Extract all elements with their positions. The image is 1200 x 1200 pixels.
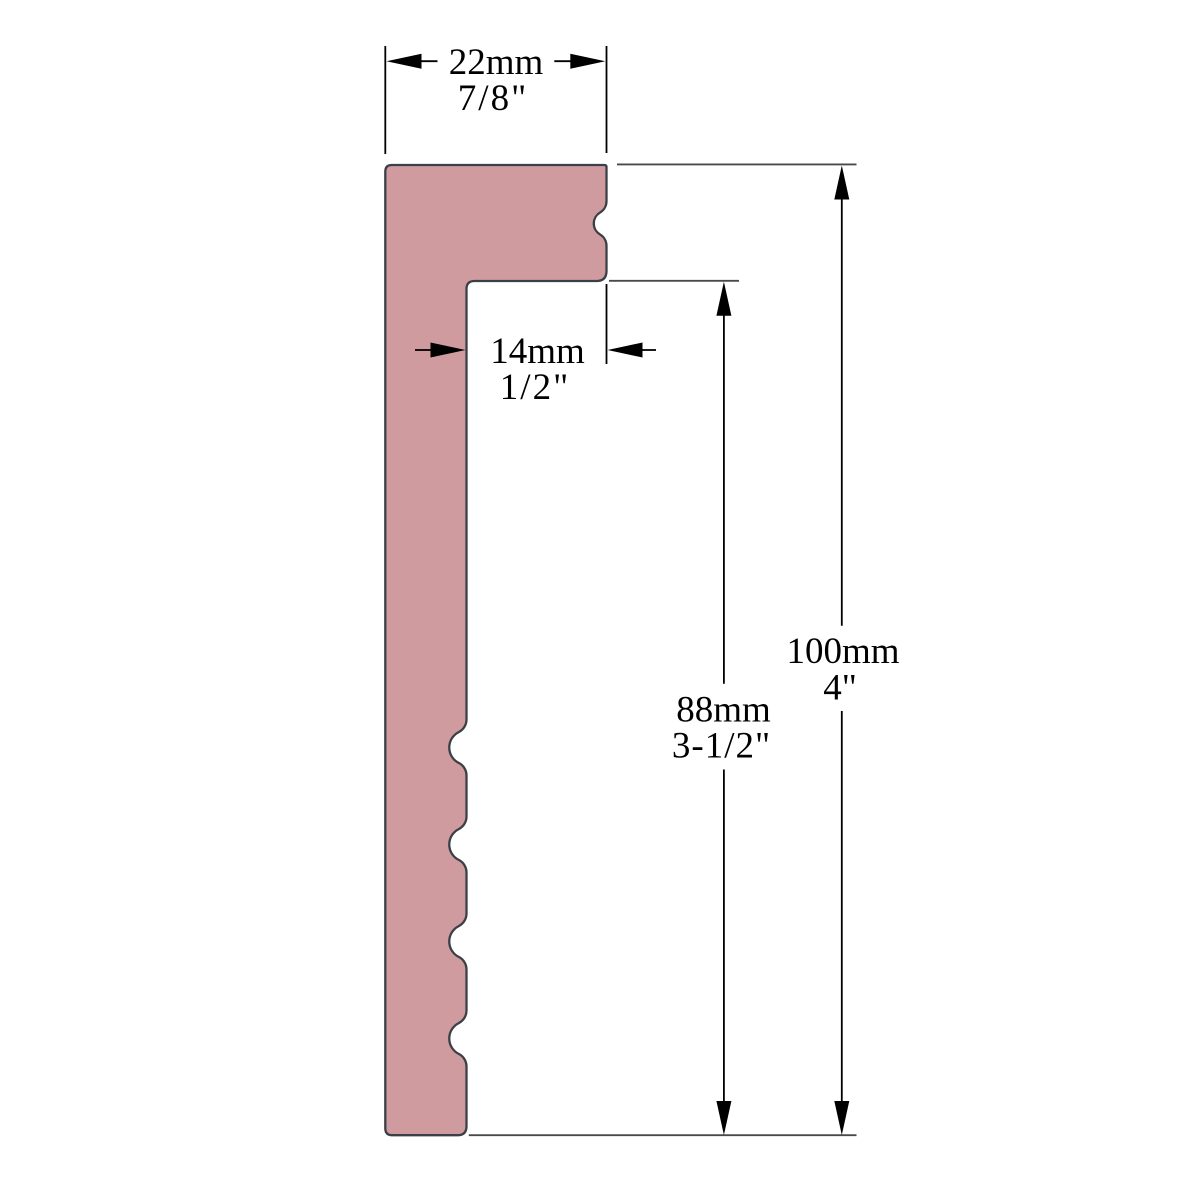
svg-text:14mm: 14mm — [490, 331, 585, 372]
svg-text:1/2": 1/2" — [500, 367, 570, 408]
svg-text:4": 4" — [823, 668, 857, 709]
svg-text:100mm: 100mm — [786, 631, 899, 672]
svg-text:7/8": 7/8" — [458, 78, 528, 119]
svg-text:3-1/2": 3-1/2" — [672, 726, 771, 767]
svg-text:22mm: 22mm — [449, 42, 544, 83]
svg-text:88mm: 88mm — [676, 690, 771, 731]
